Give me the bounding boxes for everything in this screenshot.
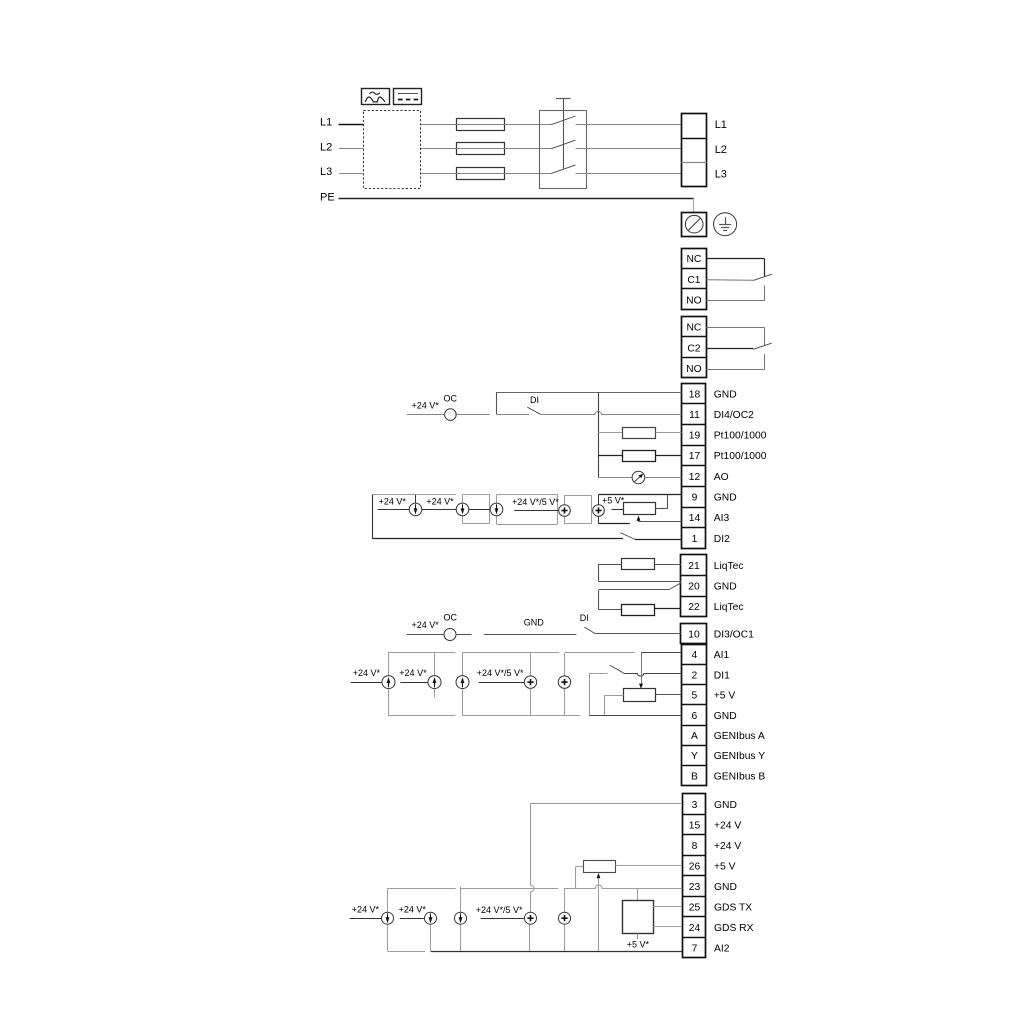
svg-text:8: 8 [692, 841, 698, 852]
svg-text:+5 V*: +5 V* [627, 940, 650, 950]
svg-text:C2: C2 [687, 343, 700, 354]
svg-text:AO: AO [714, 472, 729, 483]
svg-text:+24 V*: +24 V* [379, 496, 407, 506]
svg-text:DI2: DI2 [714, 534, 730, 545]
svg-text:15: 15 [689, 820, 701, 831]
svg-text:+5 V: +5 V [714, 691, 736, 702]
svg-text:L1: L1 [715, 119, 727, 131]
svg-text:LiqTec: LiqTec [714, 561, 744, 572]
svg-text:AI1: AI1 [714, 650, 730, 661]
svg-text:GND: GND [714, 711, 737, 722]
svg-text:14: 14 [689, 513, 701, 524]
svg-text:10: 10 [688, 629, 700, 640]
svg-text:+24 V*: +24 V* [353, 668, 381, 678]
svg-text:NC: NC [686, 322, 701, 333]
svg-text:+5 V: +5 V [714, 861, 736, 872]
svg-text:22: 22 [688, 602, 700, 613]
svg-text:11: 11 [689, 410, 700, 421]
svg-text:LiqTec: LiqTec [714, 602, 744, 613]
svg-text:DI1: DI1 [714, 670, 730, 681]
svg-text:+24 V*: +24 V* [412, 620, 440, 630]
svg-text:NO: NO [686, 296, 701, 307]
svg-text:+24 V*: +24 V* [352, 905, 380, 915]
svg-text:+24 V*: +24 V* [399, 668, 427, 678]
svg-text:+24 V*/5 V*: +24 V*/5 V* [512, 497, 559, 507]
svg-text:+24 V: +24 V [714, 841, 741, 852]
svg-text:OC: OC [444, 393, 458, 403]
svg-text:Pt100/1000: Pt100/1000 [714, 451, 767, 462]
svg-text:GENIbus B: GENIbus B [714, 771, 766, 782]
svg-text:4: 4 [692, 650, 698, 661]
svg-text:L3: L3 [320, 166, 332, 178]
svg-text:7: 7 [692, 943, 698, 954]
svg-text:19: 19 [689, 431, 701, 442]
svg-text:OC: OC [444, 613, 458, 623]
svg-text:GND: GND [524, 618, 545, 628]
svg-text:18: 18 [689, 389, 701, 400]
svg-text:AI2: AI2 [714, 943, 730, 954]
svg-text:+5 V*: +5 V* [602, 496, 625, 506]
svg-text:2: 2 [692, 670, 698, 681]
svg-text:GND: GND [714, 882, 737, 893]
svg-text:GDS TX: GDS TX [714, 902, 752, 913]
svg-text:L1: L1 [320, 116, 332, 128]
svg-text:GND: GND [714, 581, 737, 592]
svg-text:24: 24 [689, 923, 701, 934]
svg-text:DI3/OC1: DI3/OC1 [714, 629, 754, 640]
svg-text:GENIbus A: GENIbus A [714, 731, 765, 742]
svg-text:DI: DI [580, 613, 589, 623]
svg-text:Y: Y [691, 751, 698, 762]
svg-text:NO: NO [686, 364, 701, 375]
svg-text:DI: DI [530, 395, 539, 405]
svg-text:C1: C1 [687, 275, 700, 286]
svg-text:23: 23 [689, 882, 701, 893]
svg-text:GND: GND [714, 493, 737, 504]
svg-text:PE: PE [320, 191, 335, 203]
svg-text:+24 V*: +24 V* [412, 400, 440, 410]
svg-text:+24 V*: +24 V* [399, 905, 427, 915]
svg-text:B: B [691, 771, 698, 782]
svg-text:GND: GND [714, 800, 737, 811]
svg-text:NC: NC [686, 254, 701, 265]
svg-text:L2: L2 [320, 142, 332, 154]
svg-text:20: 20 [688, 581, 700, 592]
svg-text:+24 V*/5 V*: +24 V*/5 V* [476, 905, 523, 915]
svg-text:L2: L2 [715, 144, 727, 156]
svg-text:Pt100/1000: Pt100/1000 [714, 431, 767, 442]
svg-text:1: 1 [692, 534, 698, 545]
svg-text:6: 6 [692, 711, 698, 722]
svg-text:AI3: AI3 [714, 513, 730, 524]
svg-text:12: 12 [689, 472, 701, 483]
svg-text:+24 V*: +24 V* [426, 496, 454, 506]
svg-text:+24 V*/5 V*: +24 V*/5 V* [477, 668, 524, 678]
svg-text:GND: GND [714, 389, 737, 400]
svg-text:3: 3 [692, 800, 698, 811]
svg-text:+24 V: +24 V [714, 820, 741, 831]
svg-text:21: 21 [688, 561, 700, 572]
svg-text:17: 17 [689, 451, 701, 462]
svg-text:25: 25 [689, 902, 701, 913]
svg-text:5: 5 [692, 691, 698, 702]
svg-text:GDS RX: GDS RX [714, 923, 754, 934]
svg-text:GENIbus Y: GENIbus Y [714, 751, 765, 762]
svg-text:26: 26 [689, 861, 701, 872]
svg-text:DI4/OC2: DI4/OC2 [714, 410, 754, 421]
svg-text:L3: L3 [715, 169, 727, 181]
svg-text:9: 9 [692, 493, 698, 504]
svg-text:A: A [691, 731, 698, 742]
